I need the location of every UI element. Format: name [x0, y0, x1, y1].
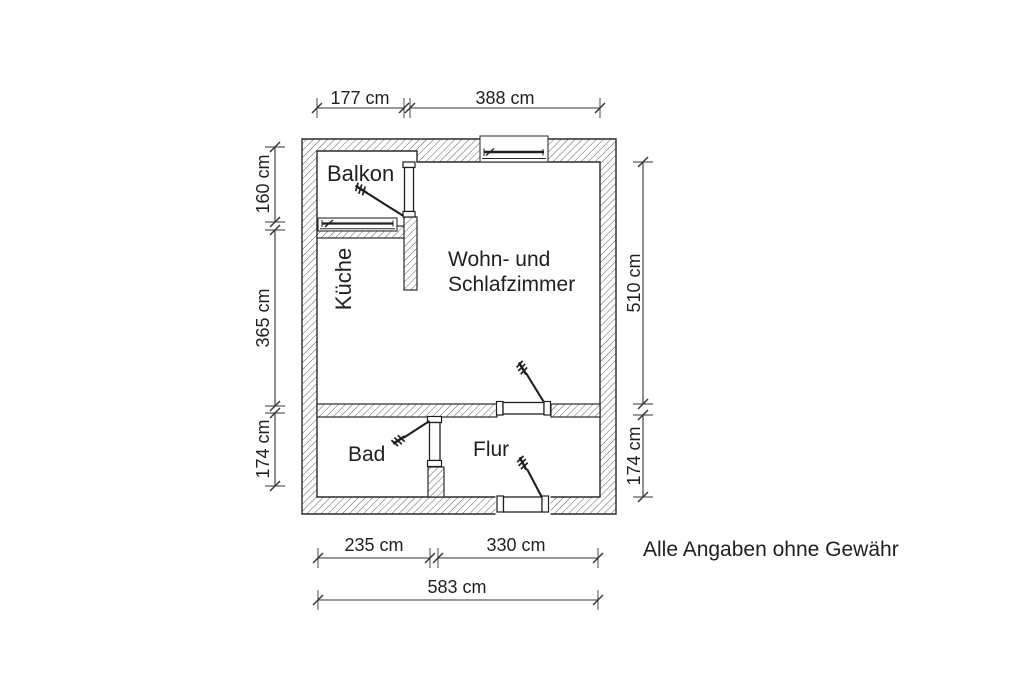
- room-label-balkon: Balkon: [327, 161, 394, 186]
- dim-right-flur-label: 174 cm: [624, 426, 644, 485]
- dim-right-wohnzimmer-label: 510 cm: [624, 253, 644, 312]
- room-label-wohnzimmer-line1: Wohn- und: [448, 248, 550, 271]
- window-wohnzimmer-icon: [480, 136, 548, 162]
- dim-top-left-label: 177 cm: [330, 88, 389, 108]
- wall-kueche-wohnzimmer: [404, 217, 417, 290]
- dim-left-kueche-label: 365 cm: [253, 288, 273, 347]
- dim-left-bad-label: 174 cm: [253, 419, 273, 478]
- room-label-bad: Bad: [348, 443, 385, 466]
- floor-plan-drawing: 177 cm 388 cm 160 cm 365 cm 174 cm 510 c…: [0, 0, 1024, 686]
- wall-mid-left: [317, 404, 497, 417]
- wall-mid-right: [551, 404, 600, 417]
- disclaimer-text: Alle Angaben ohne Gewähr: [643, 538, 899, 561]
- room-label-flur: Flur: [473, 438, 509, 461]
- dim-bottom-bad-label: 235 cm: [344, 535, 403, 555]
- wall-bad-flur: [428, 467, 444, 497]
- dim-bottom-flur-label: 330 cm: [486, 535, 545, 555]
- room-label-wohnzimmer-line2: Schlafzimmer: [448, 273, 575, 296]
- dim-bottom-total-label: 583 cm: [427, 577, 486, 597]
- window-balkon-kueche-icon: [318, 218, 397, 231]
- dim-top-right-label: 388 cm: [475, 88, 534, 108]
- room-label-kueche: Küche: [331, 248, 356, 310]
- dim-left-balkon-label: 160 cm: [253, 154, 273, 213]
- floor-plan-page: 177 cm 388 cm 160 cm 365 cm 174 cm 510 c…: [0, 0, 1024, 686]
